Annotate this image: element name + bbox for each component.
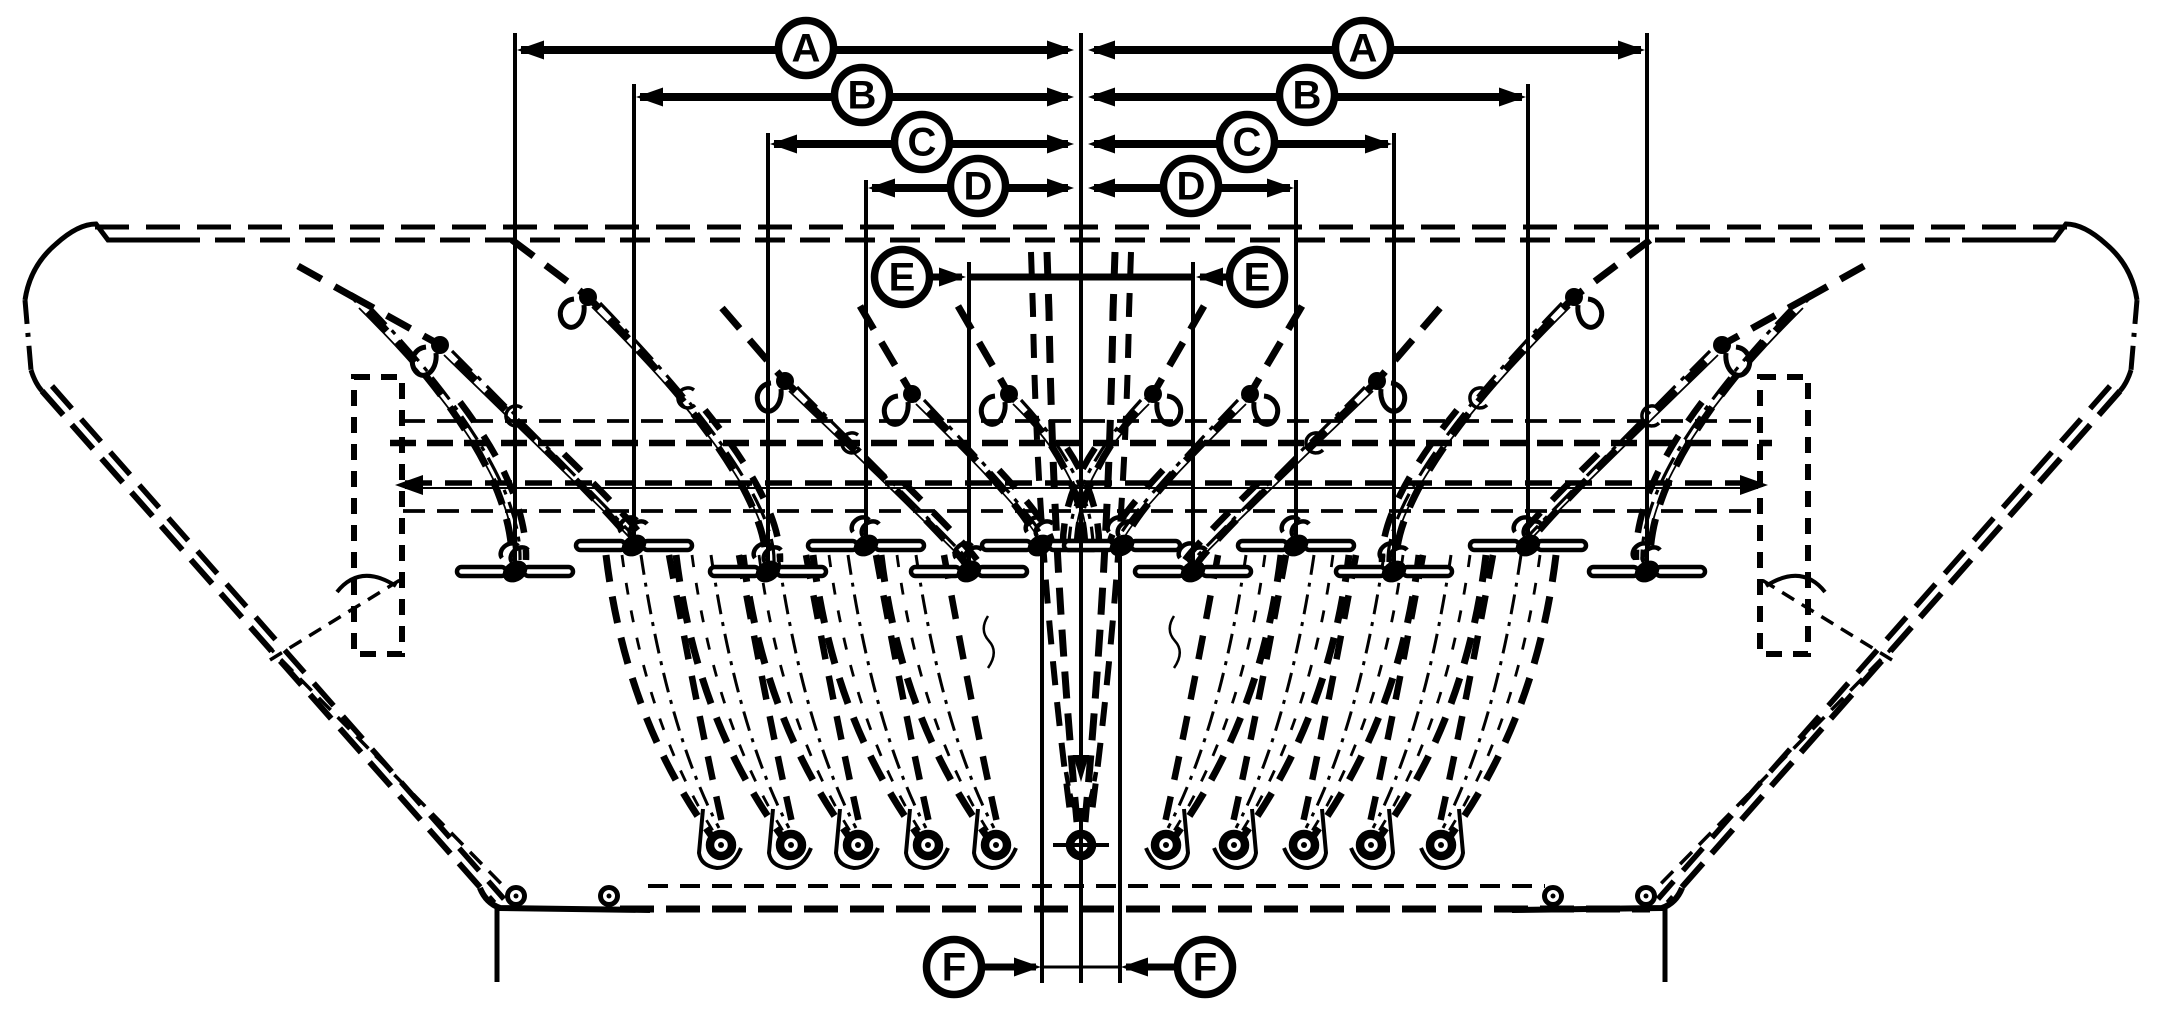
svg-text:E: E [1244, 256, 1271, 300]
svg-text:C: C [1233, 121, 1262, 165]
svg-text:B: B [1293, 74, 1322, 118]
svg-text:D: D [964, 165, 993, 209]
svg-text:B: B [848, 74, 877, 118]
svg-text:C: C [908, 121, 937, 165]
svg-text:D: D [1177, 165, 1206, 209]
svg-text:A: A [1349, 27, 1378, 71]
svg-text:F: F [942, 946, 966, 990]
svg-text:F: F [1193, 946, 1217, 990]
svg-text:A: A [792, 27, 821, 71]
svg-text:E: E [889, 256, 916, 300]
